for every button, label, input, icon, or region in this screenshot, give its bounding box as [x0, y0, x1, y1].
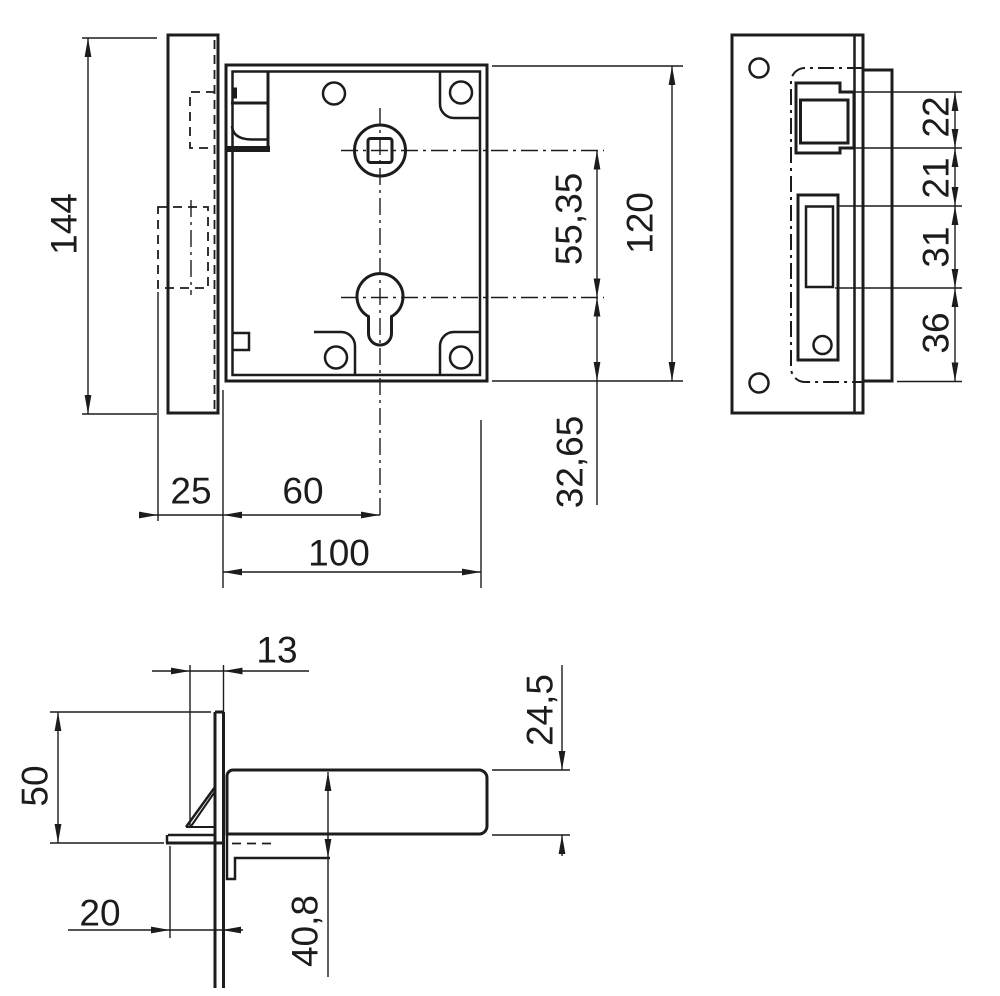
dim-label-144: 144	[44, 193, 85, 255]
dim-label-40-8: 40,8	[285, 895, 326, 967]
bolt-cutout	[806, 207, 833, 288]
dim-label-21: 21	[916, 157, 957, 198]
dim-label-20: 20	[79, 893, 120, 934]
dim-label-36: 36	[916, 312, 957, 353]
bottom-view-geometry	[166, 712, 487, 988]
technical-drawing-page: 144 25 60 100 55,35 120 32,65	[0, 0, 1000, 996]
dim-label-50: 50	[15, 765, 56, 806]
bottom-view: 13 50 20 40,8 24,5	[15, 630, 571, 989]
side-view: 22 21 31 36	[732, 35, 962, 413]
dim-label-55-35: 55,35	[549, 173, 590, 266]
dim-label-24-5: 24,5	[520, 674, 561, 746]
latch-face	[801, 100, 849, 143]
dim-label-13: 13	[256, 630, 297, 671]
drawing-canvas: 144 25 60 100 55,35 120 32,65	[0, 0, 1000, 996]
latch-bolt-tip	[233, 88, 238, 99]
dim-label-32-65: 32,65	[550, 416, 591, 509]
gusset-hypotenuse-inner	[191, 792, 216, 828]
dim-label-31: 31	[916, 226, 957, 267]
front-view-geometry	[158, 35, 604, 518]
dim-label-120: 120	[620, 192, 661, 254]
dim-label-25: 25	[170, 471, 211, 512]
bent-tab-outline	[227, 834, 330, 879]
dim-label-22: 22	[916, 96, 957, 137]
case-section-outline	[227, 770, 487, 834]
dim-label-100: 100	[308, 533, 370, 574]
front-view: 144 25 60 100 55,35 120 32,65	[44, 35, 684, 588]
dim-label-60: 60	[282, 471, 323, 512]
case-body-edge	[863, 70, 892, 381]
